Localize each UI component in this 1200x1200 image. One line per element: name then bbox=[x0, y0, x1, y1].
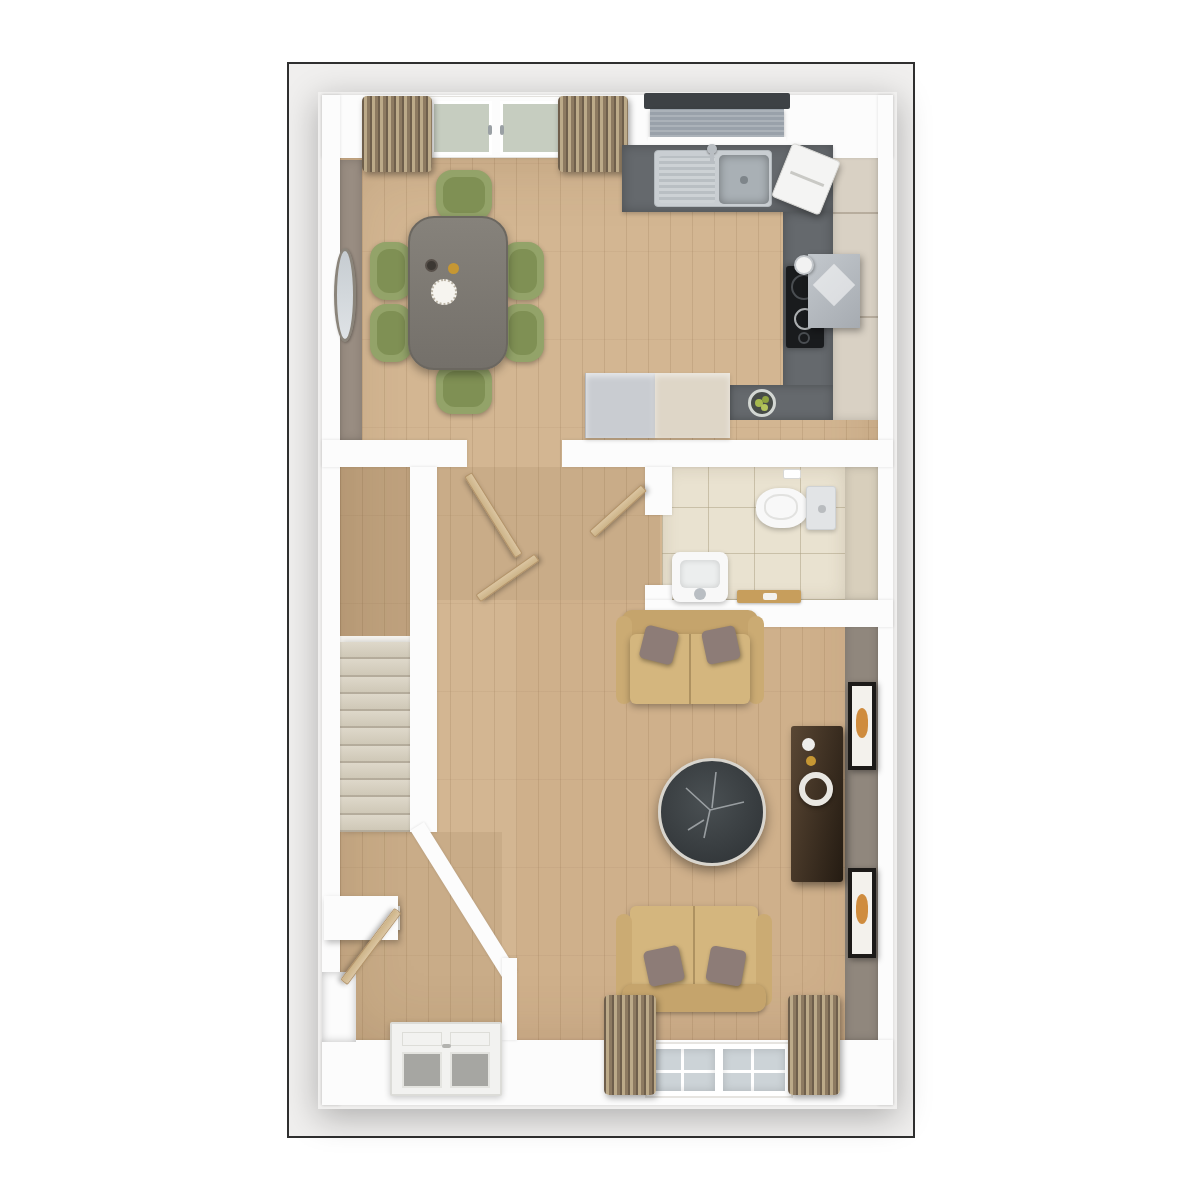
plate bbox=[431, 279, 457, 305]
soap bbox=[763, 593, 777, 600]
ring-ornament bbox=[799, 772, 833, 806]
stair-step bbox=[340, 659, 410, 676]
window-pane bbox=[653, 1049, 715, 1091]
toilet-pan bbox=[756, 488, 808, 528]
sofa-seat-divider bbox=[693, 906, 695, 988]
frame-art bbox=[856, 708, 868, 738]
basin-tap bbox=[694, 588, 706, 600]
french-door-pane-right bbox=[500, 101, 561, 155]
outer-wall-left bbox=[322, 95, 340, 1105]
chair-seat bbox=[443, 371, 485, 407]
stair-step bbox=[340, 797, 410, 814]
stair-step bbox=[340, 746, 410, 763]
dining-chair bbox=[370, 304, 412, 362]
dining-curtain-right bbox=[558, 96, 628, 172]
dining-chair bbox=[502, 304, 544, 362]
kettle bbox=[794, 255, 814, 275]
dining-chair bbox=[436, 170, 492, 220]
door-panel bbox=[402, 1032, 442, 1046]
fridge bbox=[585, 373, 655, 438]
dining-table bbox=[408, 216, 508, 370]
wall-art-frame bbox=[848, 868, 876, 958]
staircase-steps bbox=[340, 642, 410, 832]
kitchen-window-blind-bar bbox=[644, 93, 790, 109]
toilet-cistern bbox=[806, 486, 836, 530]
stair-step bbox=[340, 677, 410, 694]
wc-right-wall-face bbox=[845, 467, 878, 600]
door-panel bbox=[450, 1032, 490, 1046]
toilet-roll-holder bbox=[783, 469, 801, 479]
gold-bowl-ornament bbox=[806, 756, 816, 766]
wooden-tray bbox=[737, 590, 801, 603]
wc-basin bbox=[672, 552, 728, 602]
fruit-bowl bbox=[748, 389, 776, 417]
basin-bowl bbox=[680, 560, 720, 588]
mid-wall-right bbox=[562, 440, 893, 467]
kitchen-window-blind bbox=[650, 109, 784, 137]
living-right-wall-face bbox=[845, 600, 878, 1040]
french-door-pane-left bbox=[431, 101, 492, 155]
frame-art bbox=[856, 894, 868, 924]
wc-left-wall-lower bbox=[645, 585, 672, 600]
fruit bbox=[761, 404, 768, 411]
media-sideboard bbox=[791, 726, 843, 882]
stair-step bbox=[340, 728, 410, 745]
extractor-fold bbox=[813, 264, 855, 306]
dark-cup bbox=[425, 259, 438, 272]
front-door bbox=[390, 1022, 502, 1096]
white-ball-ornament bbox=[802, 738, 815, 751]
living-window bbox=[645, 1042, 793, 1098]
french-doors bbox=[424, 96, 566, 158]
stairs-hall-wall bbox=[410, 467, 437, 832]
wc-left-wall-upper bbox=[645, 467, 672, 515]
chair-seat bbox=[377, 311, 405, 355]
sink-tap-spout bbox=[710, 150, 714, 164]
coffee-table bbox=[658, 758, 766, 866]
scatter-cushion bbox=[643, 945, 686, 988]
dining-chair bbox=[502, 242, 544, 300]
french-door-handle bbox=[500, 125, 504, 135]
dining-chair bbox=[436, 364, 492, 414]
fruit bbox=[762, 396, 769, 403]
flush-button bbox=[818, 505, 826, 513]
door-glass-panel bbox=[450, 1052, 490, 1088]
door-glass-panel bbox=[402, 1052, 442, 1088]
door-handle bbox=[442, 1044, 451, 1048]
sink-drainer bbox=[659, 156, 715, 203]
chair-seat bbox=[443, 177, 485, 213]
worktop-bottom-run bbox=[730, 385, 833, 420]
appliance-slot bbox=[790, 171, 825, 187]
scatter-cushion bbox=[705, 945, 747, 987]
stair-step bbox=[340, 780, 410, 797]
extractor-hood bbox=[808, 254, 860, 328]
chair-seat bbox=[377, 249, 405, 293]
chair-seat bbox=[509, 311, 537, 355]
toilet-seat bbox=[764, 494, 798, 520]
french-door-handle bbox=[488, 125, 492, 135]
entry-alcove bbox=[322, 972, 356, 1042]
oval-wall-mirror bbox=[334, 248, 356, 342]
mid-wall-left bbox=[322, 440, 467, 467]
scatter-cushion bbox=[701, 625, 741, 665]
dining-chair bbox=[370, 242, 412, 300]
living-entry-wall bbox=[502, 958, 517, 1040]
dining-curtain-left bbox=[362, 96, 432, 172]
wall-art-frame bbox=[848, 682, 876, 770]
sink-drain bbox=[740, 176, 748, 184]
chair-seat bbox=[509, 249, 537, 293]
marble-veins bbox=[658, 758, 766, 866]
stair-step bbox=[340, 815, 410, 832]
kitchen-base-unit bbox=[655, 373, 730, 438]
floorplan-screenshot bbox=[0, 0, 1200, 1200]
sofa-top bbox=[616, 610, 764, 706]
stair-step bbox=[340, 694, 410, 711]
living-curtain-left bbox=[604, 995, 656, 1095]
stair-step bbox=[340, 642, 410, 659]
sofa-seat-divider bbox=[689, 634, 691, 704]
living-curtain-right bbox=[788, 995, 840, 1095]
hob-burner bbox=[798, 332, 810, 344]
stair-step bbox=[340, 763, 410, 780]
sofa-arm bbox=[748, 616, 764, 704]
stair-step bbox=[340, 711, 410, 728]
gold-cup bbox=[448, 263, 459, 274]
window-pane bbox=[723, 1049, 785, 1091]
